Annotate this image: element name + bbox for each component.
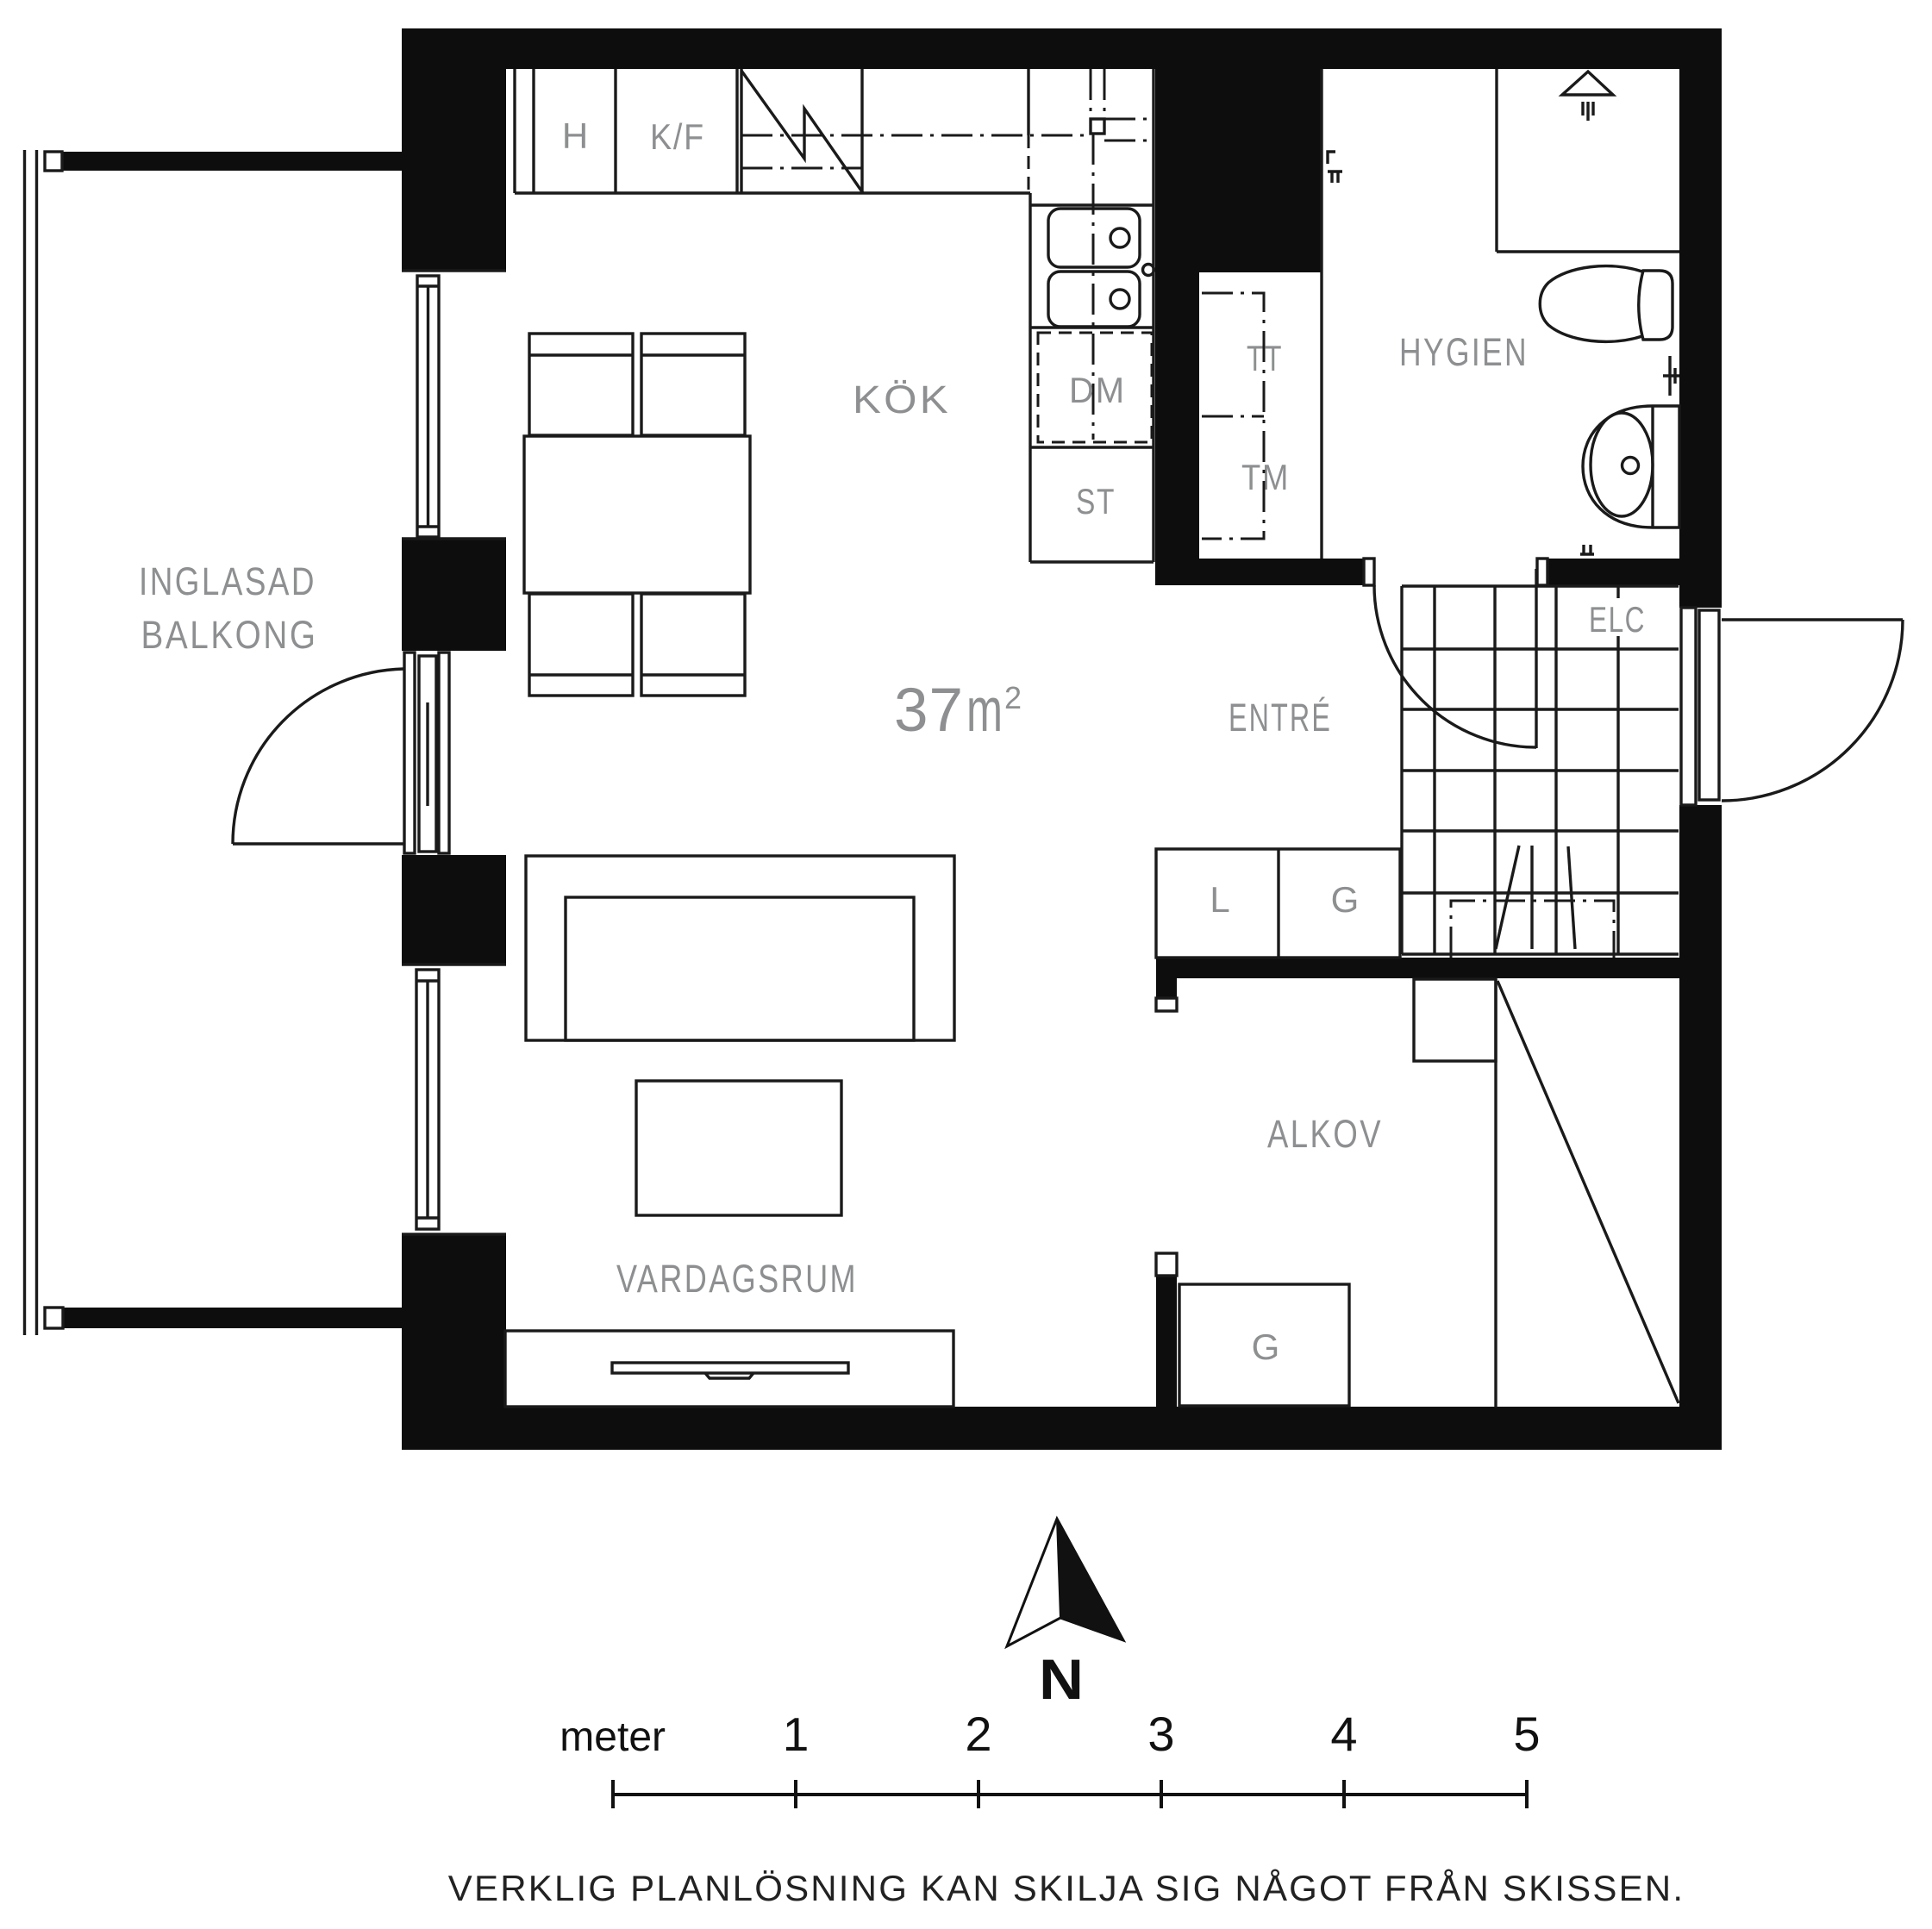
svg-text:2: 2 <box>965 1707 991 1761</box>
svg-text:H: H <box>562 115 590 156</box>
svg-text:INGLASAD: INGLASAD <box>139 559 316 603</box>
svg-text:N: N <box>1039 1647 1084 1711</box>
svg-text:ALKOV: ALKOV <box>1267 1112 1383 1156</box>
svg-text:m: m <box>966 677 1003 745</box>
svg-text:37: 37 <box>894 677 964 745</box>
svg-text:3: 3 <box>1147 1707 1174 1761</box>
svg-text:ST: ST <box>1076 481 1116 521</box>
svg-text:KÖK: KÖK <box>853 378 951 421</box>
svg-text:VARDAGSRUM: VARDAGSRUM <box>616 1257 858 1301</box>
svg-text:5: 5 <box>1513 1707 1540 1761</box>
svg-text:HYGIEN: HYGIEN <box>1399 330 1529 374</box>
svg-text:ENTRÉ: ENTRÉ <box>1229 696 1332 740</box>
svg-text:TM: TM <box>1241 457 1290 497</box>
svg-text:L: L <box>1210 879 1231 920</box>
svg-text:K/F: K/F <box>650 116 705 157</box>
svg-text:G: G <box>1252 1327 1282 1367</box>
svg-text:G: G <box>1331 879 1361 920</box>
svg-text:VERKLIG PLANLÖSNING KAN SKILJA: VERKLIG PLANLÖSNING KAN SKILJA SIG NÅGOT… <box>448 1868 1685 1908</box>
svg-text:ELC: ELC <box>1589 599 1646 640</box>
svg-text:2: 2 <box>1004 680 1022 715</box>
svg-text:1: 1 <box>783 1707 810 1761</box>
svg-text:BALKONG: BALKONG <box>141 613 318 657</box>
svg-text:meter: meter <box>560 1714 666 1760</box>
svg-text:DM: DM <box>1069 370 1126 410</box>
svg-text:4: 4 <box>1330 1707 1357 1761</box>
